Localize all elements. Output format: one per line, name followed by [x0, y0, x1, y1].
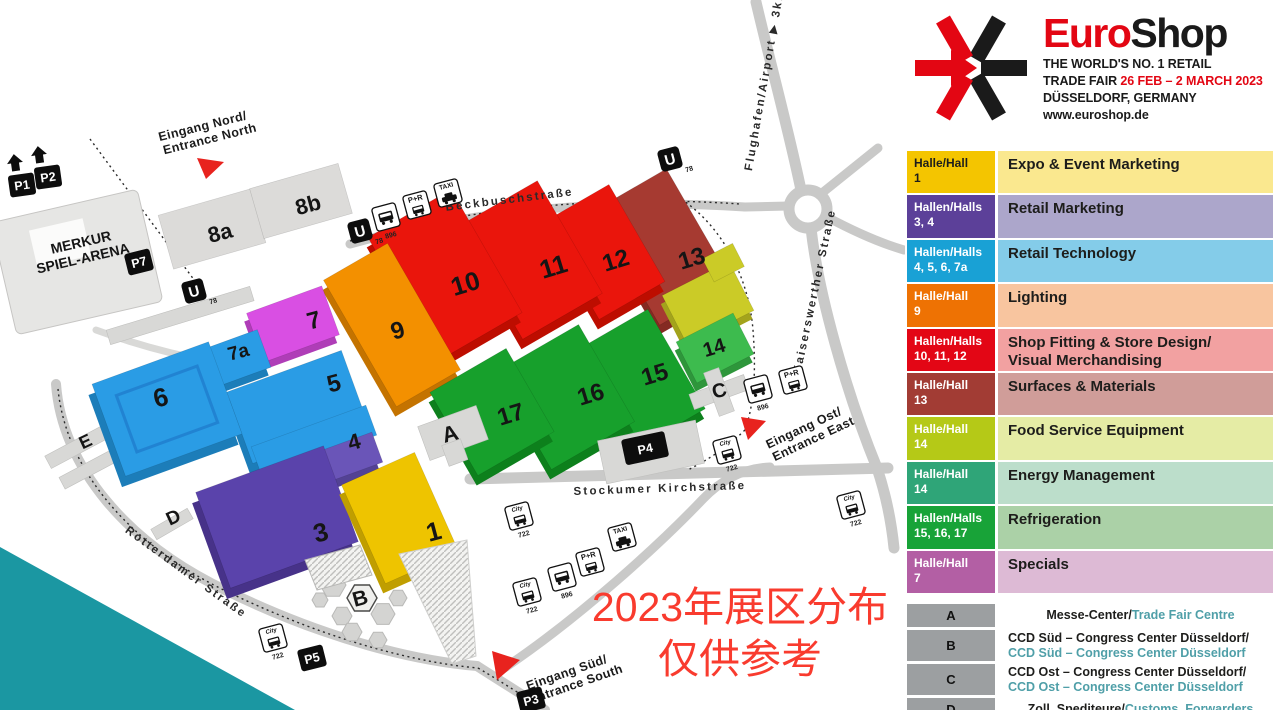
tagline-line1: THE WORLD'S NO. 1 RETAIL	[1043, 56, 1273, 73]
entrance-north-marker	[197, 158, 224, 179]
facility-key-a: A	[907, 604, 995, 627]
taxi-icon: TAXI	[607, 522, 636, 551]
u-bahn-line-number: 78	[685, 165, 694, 174]
legend-category: Surfaces & Materials	[998, 373, 1273, 415]
legend-row-hall1: Halle/Hall1 Expo & Event Marketing	[907, 151, 1273, 193]
hall-word: Hallen/Halls	[914, 245, 990, 260]
bus-number: 722	[525, 606, 538, 616]
hall-word: Halle/Hall	[914, 422, 990, 437]
road-branch-northeast	[822, 148, 878, 193]
facility-de: CCD Ost – Congress Center Düsseldorf/	[1008, 665, 1273, 680]
legend-hall-label: Halle/Hall14	[907, 462, 995, 504]
parking-p5-icon: P5	[297, 644, 328, 672]
road-stockumer	[470, 468, 888, 479]
bus-number: 722	[517, 530, 530, 540]
arrow-up-icon	[6, 153, 24, 172]
parking-p2-icon: P2	[34, 164, 63, 189]
city-bus-722-icon: City 722	[512, 577, 544, 617]
legend-hall-label: Halle/Hall13	[907, 373, 995, 415]
facility-row-d: D Zoll, Spediteure/Customs, Forwarders	[907, 698, 1273, 710]
facilities-legend: A Messe-Center/Trade Fair Centre B CCD S…	[907, 604, 1273, 710]
bus-896-icon: 896	[743, 374, 775, 414]
facility-en: Trade Fair Centre	[1132, 608, 1235, 623]
hall-1-hatched-tail	[399, 540, 476, 664]
city-bus-722-icon: City 722	[504, 501, 536, 541]
legend-category: Lighting	[998, 284, 1273, 326]
hall-category-legend: Halle/Hall1 Expo & Event Marketing Halle…	[907, 151, 1273, 595]
tagline-line3: DÜSSELDORF, GERMANY	[1043, 90, 1273, 107]
legend-hall-label: Hallen/Halls4, 5, 6, 7a	[907, 240, 995, 282]
hall-word: Hallen/Halls	[914, 334, 990, 349]
facility-en: CCD Ost – Congress Center Düsseldorf	[1008, 680, 1273, 695]
hall-word: Hallen/Halls	[914, 200, 990, 215]
facility-key-b: B	[907, 630, 995, 661]
hall-word: Halle/Hall	[914, 289, 990, 304]
legend-row-hall14-food: Halle/Hall14 Food Service Equipment	[907, 417, 1273, 459]
taxi-icon: TAXI	[433, 178, 462, 207]
brand-euro: Euro	[1043, 10, 1130, 56]
brand-wordmark: EuroShop	[1043, 10, 1273, 56]
facility-en: CCD Süd – Congress Center Düsseldorf	[1008, 646, 1273, 661]
facility-row-b: B CCD Süd – Congress Center Düsseldorf/C…	[907, 630, 1273, 661]
bus-number: 896	[756, 403, 769, 413]
entrance-east-marker	[741, 417, 766, 440]
facility-text: CCD Süd – Congress Center Düsseldorf/CCD…	[998, 630, 1273, 661]
city-bus-722-icon: City 722	[258, 623, 290, 663]
road-branch-east	[827, 217, 904, 250]
legend-category: Refrigeration	[998, 506, 1273, 548]
city-bus-722-icon: City 722	[836, 490, 868, 530]
legend-hall-label: Hallen/Halls15, 16, 17	[907, 506, 995, 548]
facility-key-c: C	[907, 664, 995, 695]
hall-numbers: 1	[914, 171, 990, 186]
legend-category: Expo & Event Marketing	[998, 151, 1273, 193]
facility-row-a: A Messe-Center/Trade Fair Centre	[907, 604, 1273, 627]
park-and-ride-icon: P+R	[402, 190, 431, 219]
facility-text: Zoll, Spediteure/Customs, Forwarders	[998, 698, 1273, 710]
legend-row-halls3-4: Hallen/Halls3, 4 Retail Marketing	[907, 195, 1273, 237]
parking-p2-label: P2	[40, 169, 57, 185]
parking-p1-icon: P1	[8, 172, 37, 197]
facility-de: CCD Süd – Congress Center Düsseldorf/	[1008, 631, 1273, 646]
hall-word: Halle/Hall	[914, 556, 990, 571]
hall-numbers: 10, 11, 12	[914, 349, 990, 364]
arrow-up-icon	[30, 145, 48, 164]
legend-row-halls15-16-17: Hallen/Halls15, 16, 17 Refrigeration	[907, 506, 1273, 548]
hall-numbers: 9	[914, 304, 990, 319]
hall-word: Halle/Hall	[914, 467, 990, 482]
euroshop-fairground-map-page: MERKUR SPIEL-ARENA	[0, 0, 1273, 710]
legend-category: Retail Technology	[998, 240, 1273, 282]
map-note: 2023年展区分布 仅供参考	[575, 581, 905, 686]
hall-numbers: 4, 5, 6, 7a	[914, 260, 990, 275]
euroshop-star-icon	[907, 4, 1035, 134]
hall-numbers: 7	[914, 571, 990, 586]
legend-category: Retail Marketing	[998, 195, 1273, 237]
hall-numbers: 14	[914, 482, 990, 497]
street-label-stockumer: Stockumer Kirchstraße	[573, 480, 746, 498]
legend-hall-label: Halle/Hall1	[907, 151, 995, 193]
facility-key-d: D	[907, 698, 995, 710]
facility-text: Messe-Center/Trade Fair Centre	[998, 604, 1273, 627]
facility-text: CCD Ost – Congress Center Düsseldorf/CCD…	[998, 664, 1273, 695]
tagline-dates: 26 FEB – 2 MARCH 2023	[1120, 74, 1262, 88]
legend-row-hall9: Halle/Hall9 Lighting	[907, 284, 1273, 326]
park-and-ride-icon: P+R	[575, 547, 604, 576]
legend-row-halls10-11-12: Hallen/Halls10, 11, 12 Shop Fitting & St…	[907, 329, 1273, 371]
bus-number: 722	[271, 652, 284, 662]
parking-p1-label: P1	[14, 177, 31, 193]
legend-hall-label: Hallen/Halls10, 11, 12	[907, 329, 995, 371]
entrance-north-label: Eingang Nord/ Entrance North	[157, 107, 258, 158]
park-and-ride-icon: P+R	[778, 365, 807, 394]
hall-word: Halle/Hall	[914, 378, 990, 393]
legend-hall-label: Halle/Hall7	[907, 551, 995, 593]
hall-numbers: 13	[914, 393, 990, 408]
legend-row-halls4-5-6-7a: Hallen/Halls4, 5, 6, 7a Retail Technolog…	[907, 240, 1273, 282]
facility-en: Customs, Forwarders	[1125, 702, 1254, 710]
bus-number: 896	[560, 591, 573, 601]
tagline-line2: TRADE FAIR 26 FEB – 2 MARCH 2023	[1043, 73, 1273, 90]
map-note-line2: 仅供参考	[575, 633, 905, 685]
legend-category: Shop Fitting & Store Design/ Visual Merc…	[998, 329, 1273, 371]
tagline-tradefair: TRADE FAIR	[1043, 74, 1120, 88]
entrance-east-label: Eingang Ost/ Entrance East	[764, 401, 857, 464]
legend-row-hall13: Halle/Hall13 Surfaces & Materials	[907, 373, 1273, 415]
facility-de: Zoll, Spediteure/	[1028, 702, 1125, 710]
facility-de: Messe-Center/	[1046, 608, 1131, 623]
bus-number: 722	[849, 519, 862, 529]
hall-numbers: 3, 4	[914, 215, 990, 230]
legend-category: Specials	[998, 551, 1273, 593]
map-note-line1: 2023年展区分布	[575, 581, 905, 633]
legend-category: Energy Management	[998, 462, 1273, 504]
legend-hall-label: Hallen/Halls3, 4	[907, 195, 995, 237]
facility-row-c: C CCD Ost – Congress Center Düsseldorf/C…	[907, 664, 1273, 695]
legend-hall-label: Halle/Hall9	[907, 284, 995, 326]
hall-word: Halle/Hall	[914, 156, 990, 171]
brand-shop: Shop	[1130, 10, 1226, 56]
legend-hall-label: Halle/Hall14	[907, 417, 995, 459]
euroshop-logo: EuroShop THE WORLD'S NO. 1 RETAIL TRADE …	[905, 0, 1273, 148]
hall-numbers: 15, 16, 17	[914, 526, 990, 541]
legend-category: Food Service Equipment	[998, 417, 1273, 459]
legend-row-hall7: Halle/Hall7 Specials	[907, 551, 1273, 593]
legend-row-hall14-energy: Halle/Hall14 Energy Management	[907, 462, 1273, 504]
road-branch-west	[745, 206, 789, 207]
website-url: www.euroshop.de	[1043, 107, 1273, 124]
hall-word: Hallen/Halls	[914, 511, 990, 526]
hall-numbers: 14	[914, 437, 990, 452]
